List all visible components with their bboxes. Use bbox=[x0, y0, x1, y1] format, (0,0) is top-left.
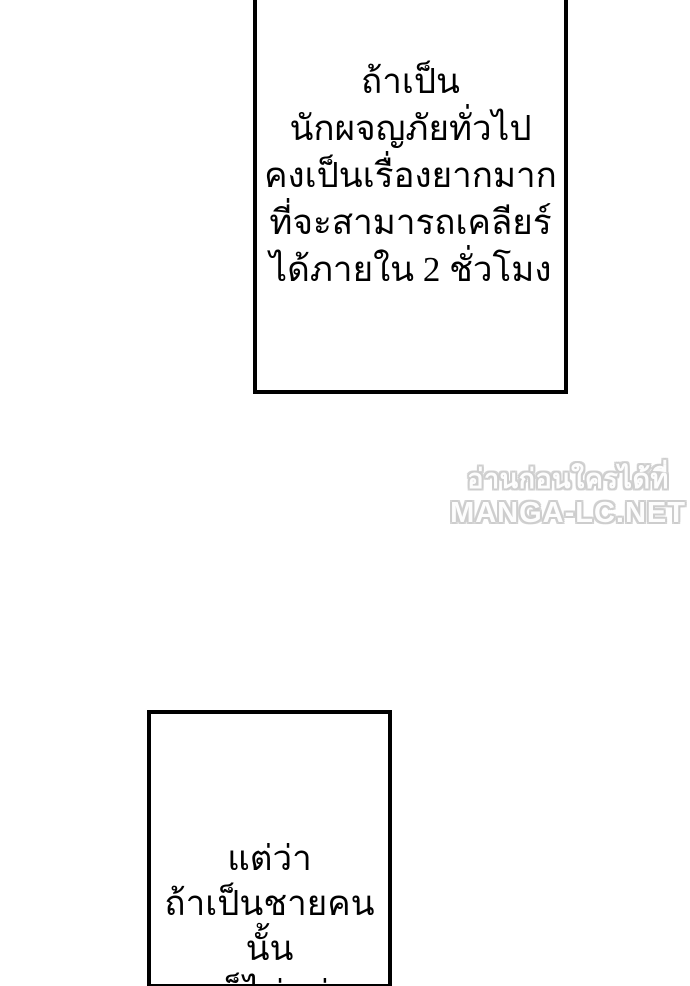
watermark-site-name: MANGA-LC.NET bbox=[450, 497, 686, 530]
watermark: อ่านก่อนใครได้ที่ MANGA-LC.NET bbox=[450, 461, 686, 530]
caption-line: ที่จะสามารถเคลียร์ bbox=[257, 199, 564, 246]
caption-line: ละก็ไม่แน่... bbox=[151, 971, 388, 986]
caption-line: ถ้าเป็นชายคนนั้น bbox=[151, 881, 388, 971]
caption-line: คงเป็นเรื่องยากมาก bbox=[257, 152, 564, 199]
watermark-thai-text: อ่านก่อนใครได้ที่ bbox=[450, 461, 686, 497]
bottom-caption-text: แต่ว่า ถ้าเป็นชายคนนั้น ละก็ไม่แน่... bbox=[151, 836, 388, 986]
top-caption-box: ถ้าเป็น นักผจญภัยทั่วไป คงเป็นเรื่องยากม… bbox=[253, 0, 568, 394]
manga-page: ถ้าเป็น นักผจญภัยทั่วไป คงเป็นเรื่องยากม… bbox=[0, 0, 690, 986]
bottom-caption-box: แต่ว่า ถ้าเป็นชายคนนั้น ละก็ไม่แน่... bbox=[147, 710, 392, 986]
caption-line: นักผจญภัยทั่วไป bbox=[257, 105, 564, 152]
caption-line: ได้ภายใน 2 ชั่วโมง bbox=[257, 246, 564, 293]
top-caption-text: ถ้าเป็น นักผจญภัยทั่วไป คงเป็นเรื่องยากม… bbox=[257, 58, 564, 293]
caption-line: ถ้าเป็น bbox=[257, 58, 564, 105]
caption-line: แต่ว่า bbox=[151, 836, 388, 881]
